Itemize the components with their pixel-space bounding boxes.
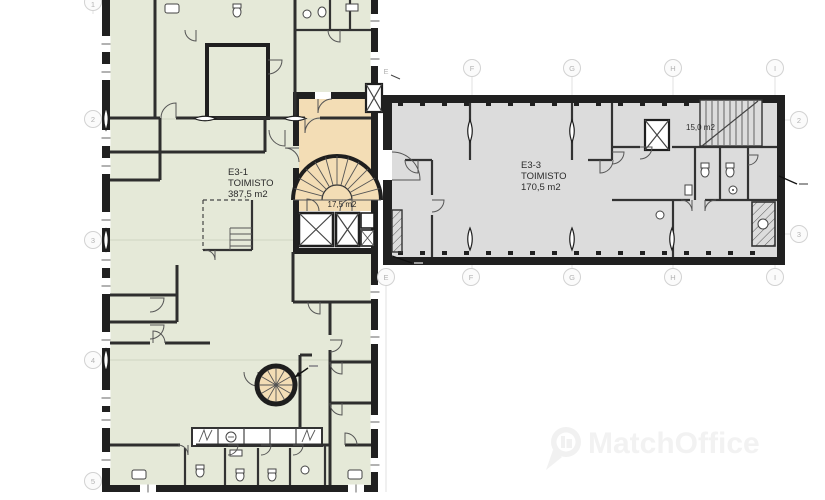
floor-plan-page: E3-1 TOIMISTO 387,5 m2 E3-3 TOIMISTO 170… [0, 0, 825, 500]
grid-bubble-h-bottom: H [670, 273, 675, 282]
location-pin-building-icon [546, 427, 581, 470]
grid-bubble-4: 4 [91, 356, 95, 365]
watermark: MatchOffice [546, 427, 760, 470]
grid-bubble-3-right: 3 [797, 230, 801, 239]
grid-bubble-f-bottom: F [469, 273, 474, 282]
grid-bubble-g-top: G [569, 64, 575, 73]
elevator-bank [299, 213, 374, 246]
grid-bubble-i-top: I [774, 64, 776, 73]
grid-label-e-top: E [383, 67, 388, 76]
junction-elevator [366, 84, 382, 112]
grid-bubble-e-bottom: E [383, 273, 388, 282]
grid-bubble-3: 3 [91, 236, 95, 245]
grid-bubble-2: 2 [91, 115, 95, 124]
grid-bubble-h-top: H [670, 64, 675, 73]
grid-bubble-f-top: F [470, 64, 475, 73]
kitchen-fixtures [192, 428, 322, 446]
grid-bubble-g-bottom: G [569, 273, 575, 282]
grid-bubble-1: 1 [91, 0, 95, 9]
radiator-hatched [392, 210, 402, 252]
floor-plan-drawing: E3-1 TOIMISTO 387,5 m2 E3-3 TOIMISTO 170… [0, 0, 825, 500]
right-elevator [645, 120, 669, 150]
grid-bubble-5: 5 [91, 477, 95, 486]
stairwell-area-label: 17,5 m2 [328, 200, 357, 209]
room-15-label: 15,0 m2 [686, 123, 715, 132]
watermark-text: MatchOffice [588, 427, 760, 460]
grid-bubble-i-bottom: I [774, 273, 776, 282]
grid-bubble-2-right: 2 [797, 116, 801, 125]
